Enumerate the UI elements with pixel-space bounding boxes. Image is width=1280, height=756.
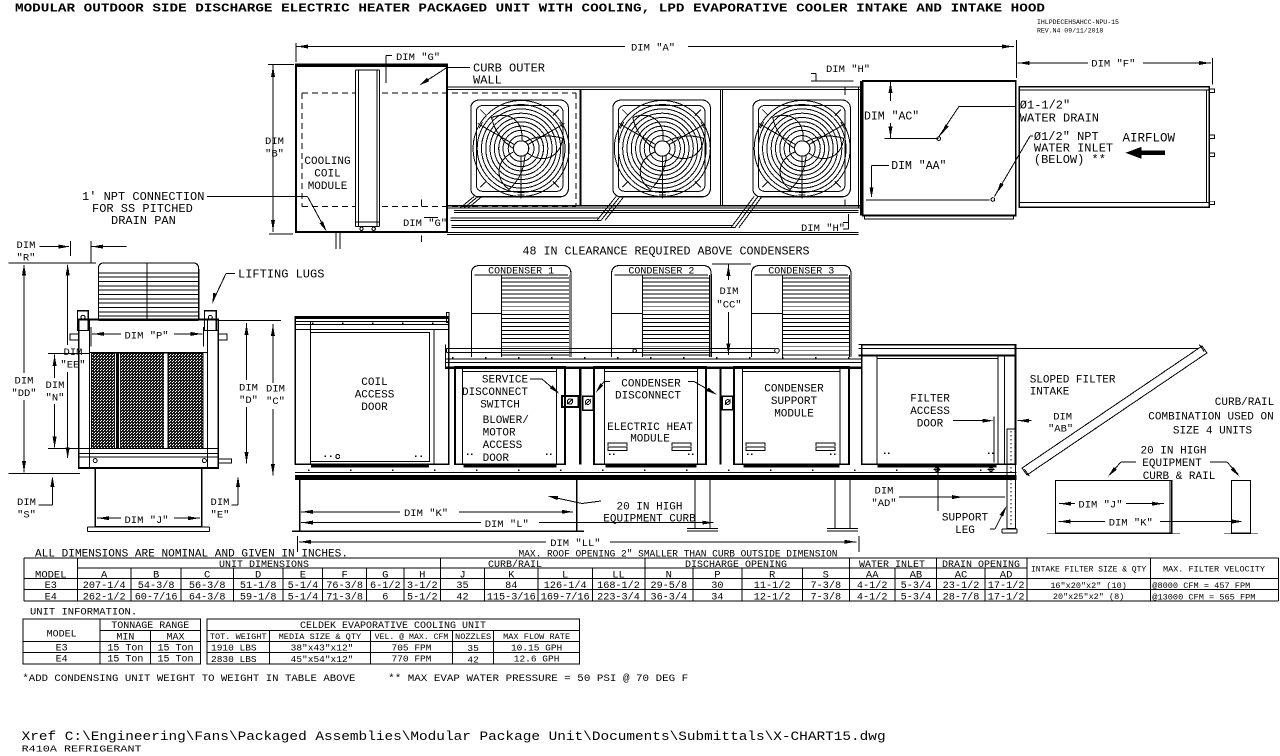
svg-text:"D": "D" bbox=[239, 395, 258, 407]
svg-text:36-3/4: 36-3/4 bbox=[650, 591, 687, 603]
svg-text:5-1/4: 5-1/4 bbox=[288, 591, 319, 603]
svg-text:DIM "G": DIM "G" bbox=[396, 52, 440, 64]
svg-text:SIZE 4 UNITS: SIZE 4 UNITS bbox=[1173, 426, 1253, 438]
svg-text:CONDENSER: CONDENSER bbox=[764, 384, 824, 396]
svg-text:REV.N4 09/11/2018: REV.N4 09/11/2018 bbox=[1037, 28, 1103, 35]
svg-text:CONDENSER 3: CONDENSER 3 bbox=[768, 267, 834, 278]
svg-text:10.15 GPH: 10.15 GPH bbox=[511, 642, 562, 653]
svg-text:INTAKE: INTAKE bbox=[1030, 387, 1070, 399]
svg-text:"CC": "CC" bbox=[716, 299, 741, 311]
svg-text:WALL: WALL bbox=[473, 74, 502, 88]
svg-text:(BELOW) **: (BELOW) ** bbox=[1034, 153, 1106, 167]
svg-text:SLOPED FILTER: SLOPED FILTER bbox=[1030, 375, 1116, 387]
svg-text:CONDENSER 1: CONDENSER 1 bbox=[488, 267, 554, 278]
svg-text:20 IN HIGH: 20 IN HIGH bbox=[616, 502, 682, 514]
svg-text:L: L bbox=[562, 569, 568, 581]
svg-text:64-3/8: 64-3/8 bbox=[189, 591, 226, 603]
svg-text:ACCESS: ACCESS bbox=[355, 390, 395, 402]
svg-text:** MAX EVAP WATER PRESSURE = 5: ** MAX EVAP WATER PRESSURE = 50 PSI @ 70… bbox=[388, 673, 688, 685]
svg-text:DOOR: DOOR bbox=[361, 402, 388, 414]
svg-text:48 IN CLEARANCE REQUIRED ABOVE: 48 IN CLEARANCE REQUIRED ABOVE CONDENSER… bbox=[523, 246, 810, 259]
svg-text:DIM: DIM bbox=[266, 384, 285, 396]
svg-text:20"x25"x2" (8): 20"x25"x2" (8) bbox=[1053, 592, 1124, 602]
svg-text:@8000 CFM = 457 FPM: @8000 CFM = 457 FPM bbox=[1152, 581, 1250, 591]
svg-text:6: 6 bbox=[382, 592, 388, 603]
svg-text:B: B bbox=[153, 569, 159, 581]
svg-text:45"x54"x12": 45"x54"x12" bbox=[291, 654, 354, 665]
svg-text:11-1/2: 11-1/2 bbox=[754, 580, 791, 592]
svg-text:DIM "AC": DIM "AC" bbox=[864, 111, 919, 124]
svg-text:H: H bbox=[419, 569, 425, 581]
svg-text:"DD": "DD" bbox=[11, 388, 36, 400]
svg-text:84: 84 bbox=[505, 581, 517, 592]
svg-text:35: 35 bbox=[456, 581, 468, 592]
svg-text:DISCONNECT: DISCONNECT bbox=[462, 387, 528, 399]
svg-text:34: 34 bbox=[711, 592, 723, 603]
svg-text:E3: E3 bbox=[45, 581, 57, 592]
svg-text:DISCONNECT: DISCONNECT bbox=[615, 391, 681, 403]
svg-text:NOZZLES: NOZZLES bbox=[455, 632, 491, 642]
svg-text:30: 30 bbox=[711, 581, 723, 592]
svg-text:IHLPDECEHSAHCC-NPU-15: IHLPDECEHSAHCC-NPU-15 bbox=[1037, 19, 1119, 26]
svg-text:"EE": "EE" bbox=[60, 360, 85, 372]
svg-text:126-1/4: 126-1/4 bbox=[544, 580, 587, 592]
svg-text:ACCESS: ACCESS bbox=[483, 440, 523, 452]
svg-text:7-3/8: 7-3/8 bbox=[811, 580, 842, 592]
svg-text:MODULE: MODULE bbox=[308, 181, 348, 193]
svg-text:DOOR: DOOR bbox=[917, 419, 944, 431]
svg-text:CELDEK EVAPORATIVE COOLING UNI: CELDEK EVAPORATIVE COOLING UNIT bbox=[300, 621, 486, 632]
svg-text:G: G bbox=[382, 569, 388, 581]
svg-text:DIM "F": DIM "F" bbox=[1091, 59, 1135, 71]
svg-text:168-1/2: 168-1/2 bbox=[597, 580, 640, 592]
svg-text:20 IN HIGH: 20 IN HIGH bbox=[1140, 446, 1206, 458]
svg-text:"E": "E" bbox=[211, 510, 230, 522]
svg-text:AB: AB bbox=[910, 569, 923, 581]
svg-text:LL: LL bbox=[612, 569, 625, 581]
svg-text:DIM: DIM bbox=[15, 376, 34, 388]
svg-text:AIRFLOW: AIRFLOW bbox=[1123, 132, 1176, 146]
svg-text:E4: E4 bbox=[45, 592, 57, 603]
svg-text:DIM: DIM bbox=[46, 380, 65, 392]
svg-text:35: 35 bbox=[467, 643, 479, 654]
svg-text:169-7/16: 169-7/16 bbox=[541, 591, 590, 603]
svg-text:DIM: DIM bbox=[1053, 412, 1072, 424]
svg-text:"N": "N" bbox=[46, 393, 65, 405]
svg-text:R410A REFRIGERANT: R410A REFRIGERANT bbox=[22, 744, 143, 755]
svg-text:CURB/RAIL: CURB/RAIL bbox=[488, 559, 542, 571]
svg-text:AD: AD bbox=[1000, 569, 1013, 581]
svg-text:VEL. @ MAX. CFM: VEL. @ MAX. CFM bbox=[375, 632, 449, 642]
svg-text:DIM: DIM bbox=[64, 347, 83, 359]
svg-text:D: D bbox=[255, 569, 261, 581]
svg-text:60-7/16: 60-7/16 bbox=[135, 591, 178, 603]
svg-text:EQUIPMENT: EQUIPMENT bbox=[1142, 458, 1202, 470]
svg-text:@13000 CFM = 565 FPM: @13000 CFM = 565 FPM bbox=[1152, 592, 1255, 602]
svg-text:LIFTING LUGS: LIFTING LUGS bbox=[238, 268, 324, 282]
svg-text:"AD": "AD" bbox=[871, 498, 896, 510]
svg-text:15 Ton: 15 Ton bbox=[107, 643, 143, 654]
svg-text:"B": "B" bbox=[265, 148, 284, 160]
svg-text:LEG: LEG bbox=[955, 525, 975, 537]
svg-text:7-3/8: 7-3/8 bbox=[811, 591, 842, 603]
svg-text:COOLING: COOLING bbox=[304, 156, 350, 168]
svg-text:15 Ton: 15 Ton bbox=[157, 643, 193, 654]
svg-text:DIM "H": DIM "H" bbox=[826, 64, 870, 76]
svg-text:12.6 GPH: 12.6 GPH bbox=[514, 654, 560, 665]
svg-text:76-3/8: 76-3/8 bbox=[326, 580, 363, 592]
svg-text:DRAIN PAN: DRAIN PAN bbox=[111, 214, 176, 228]
svg-text:6-1/2: 6-1/2 bbox=[370, 580, 401, 592]
svg-text:FILTER: FILTER bbox=[910, 394, 950, 406]
svg-text:DIM "P": DIM "P" bbox=[125, 331, 169, 343]
svg-text:UNIT INFORMATION.: UNIT INFORMATION. bbox=[30, 607, 137, 619]
svg-text:P: P bbox=[714, 569, 720, 581]
svg-text:23-1/2: 23-1/2 bbox=[943, 580, 980, 592]
svg-text:28-7/8: 28-7/8 bbox=[943, 591, 980, 603]
svg-text:MAX: MAX bbox=[166, 633, 184, 644]
svg-text:42: 42 bbox=[456, 592, 468, 603]
svg-text:DIM "H": DIM "H" bbox=[801, 223, 845, 235]
svg-text:MAX. FILTER VELOCITY: MAX. FILTER VELOCITY bbox=[1163, 565, 1265, 575]
svg-text:WATER DRAIN: WATER DRAIN bbox=[1020, 112, 1099, 126]
svg-text:262-1/2: 262-1/2 bbox=[83, 591, 126, 603]
svg-text:E3: E3 bbox=[56, 643, 68, 654]
svg-text:38"x43"x12": 38"x43"x12" bbox=[291, 643, 354, 654]
svg-text:DIM: DIM bbox=[875, 486, 894, 498]
svg-text:DIM "AA": DIM "AA" bbox=[891, 160, 946, 173]
svg-text:2830 LBS: 2830 LBS bbox=[211, 654, 257, 665]
svg-text:Ø1-1/2": Ø1-1/2" bbox=[1020, 99, 1070, 113]
svg-text:E4: E4 bbox=[56, 655, 68, 666]
svg-text:BLOWER/: BLOWER/ bbox=[483, 415, 529, 427]
svg-text:16"x20"x2" (10): 16"x20"x2" (10) bbox=[1050, 581, 1127, 591]
svg-text:INTAKE FILTER SIZE & QTY: INTAKE FILTER SIZE & QTY bbox=[1031, 566, 1146, 575]
svg-text:COMBINATION USED ON: COMBINATION USED ON bbox=[1148, 412, 1273, 424]
svg-text:ALL DIMENSIONS ARE NOMINAL AND: ALL DIMENSIONS ARE NOMINAL AND GIVEN IN … bbox=[35, 549, 348, 561]
svg-text:SERVICE: SERVICE bbox=[482, 375, 529, 387]
svg-text:TONNAGE RANGE: TONNAGE RANGE bbox=[111, 621, 189, 632]
svg-text:DIM "J": DIM "J" bbox=[1078, 500, 1122, 512]
svg-text:N: N bbox=[666, 569, 672, 581]
svg-text:"S": "S" bbox=[17, 510, 36, 522]
svg-text:29-5/8: 29-5/8 bbox=[650, 580, 687, 592]
svg-text:AA: AA bbox=[866, 569, 879, 581]
svg-text:DIM: DIM bbox=[720, 286, 739, 298]
svg-text:R: R bbox=[769, 569, 776, 581]
svg-text:"C": "C" bbox=[266, 396, 285, 408]
svg-text:DIM "K": DIM "K" bbox=[404, 508, 448, 520]
svg-text:MODEL: MODEL bbox=[35, 569, 67, 581]
svg-text:"AB": "AB" bbox=[1048, 424, 1073, 436]
svg-text:MAX FLOW RATE: MAX FLOW RATE bbox=[503, 632, 570, 642]
svg-text:CONDENSER: CONDENSER bbox=[621, 379, 681, 391]
svg-text:F: F bbox=[341, 569, 347, 581]
svg-text:DIM "G": DIM "G" bbox=[403, 218, 447, 230]
svg-text:COIL: COIL bbox=[314, 169, 340, 181]
svg-text:SUPPORT: SUPPORT bbox=[771, 396, 818, 408]
svg-text:Xref C:\Engineering\Fans\Packa: Xref C:\Engineering\Fans\Packaged Assemb… bbox=[22, 729, 886, 744]
svg-text:S: S bbox=[823, 569, 829, 581]
svg-text:AC: AC bbox=[955, 569, 968, 581]
svg-text:MODULE: MODULE bbox=[774, 409, 814, 421]
svg-text:71-3/8: 71-3/8 bbox=[326, 591, 363, 603]
svg-text:UNIT DIMENSIONS: UNIT DIMENSIONS bbox=[219, 560, 309, 571]
svg-text:115-3/16: 115-3/16 bbox=[487, 591, 536, 603]
svg-text:54-3/8: 54-3/8 bbox=[138, 580, 175, 592]
svg-text:EQUIPMENT CURB: EQUIPMENT CURB bbox=[603, 514, 696, 526]
svg-text:K: K bbox=[508, 569, 515, 581]
svg-text:15 Ton: 15 Ton bbox=[107, 655, 143, 666]
svg-text:207-1/4: 207-1/4 bbox=[83, 580, 126, 592]
svg-text:DIM: DIM bbox=[17, 497, 36, 509]
svg-text:DIM: DIM bbox=[265, 136, 284, 148]
svg-text:DIM: DIM bbox=[211, 497, 230, 509]
svg-text:DIM "J": DIM "J" bbox=[125, 515, 169, 527]
svg-text:MODULE: MODULE bbox=[630, 434, 670, 446]
svg-text:J: J bbox=[459, 569, 465, 581]
svg-text:MODEL: MODEL bbox=[47, 630, 77, 641]
svg-text:ELECTRIC HEAT: ELECTRIC HEAT bbox=[607, 422, 693, 434]
svg-text:42: 42 bbox=[467, 654, 479, 665]
svg-text:DIM "L": DIM "L" bbox=[485, 519, 529, 531]
svg-text:SUPPORT: SUPPORT bbox=[942, 513, 989, 525]
svg-text:17-1/2: 17-1/2 bbox=[988, 580, 1025, 592]
svg-text:DIM: DIM bbox=[239, 383, 258, 395]
svg-text:*ADD CONDENSING UNIT WEIGHT TO: *ADD CONDENSING UNIT WEIGHT TO WEIGHT IN… bbox=[22, 673, 355, 685]
svg-text:5-3/4: 5-3/4 bbox=[901, 591, 932, 603]
svg-text:DIM "A": DIM "A" bbox=[631, 43, 675, 55]
svg-text:DOOR: DOOR bbox=[483, 453, 510, 465]
svg-text:CURB/RAIL: CURB/RAIL bbox=[1215, 397, 1274, 409]
svg-text:A: A bbox=[101, 569, 108, 581]
svg-text:E: E bbox=[300, 569, 306, 581]
svg-text:4-1/2: 4-1/2 bbox=[857, 580, 888, 592]
svg-text:ACCESS: ACCESS bbox=[910, 406, 950, 418]
svg-text:COIL: COIL bbox=[361, 377, 387, 389]
svg-text:56-3/8: 56-3/8 bbox=[189, 580, 226, 592]
svg-text:MOTOR: MOTOR bbox=[483, 428, 516, 440]
svg-text:DIM "K": DIM "K" bbox=[1109, 518, 1153, 530]
svg-text:1910 LBS: 1910 LBS bbox=[211, 643, 257, 654]
svg-text:59-1/8: 59-1/8 bbox=[240, 591, 277, 603]
svg-text:223-3/4: 223-3/4 bbox=[597, 591, 640, 603]
svg-text:MIN: MIN bbox=[116, 633, 134, 644]
svg-text:4-1/2: 4-1/2 bbox=[857, 591, 888, 603]
svg-text:51-1/8: 51-1/8 bbox=[240, 580, 277, 592]
svg-text:12-1/2: 12-1/2 bbox=[754, 591, 791, 603]
svg-text:SWITCH: SWITCH bbox=[480, 400, 520, 412]
svg-text:705 FPM: 705 FPM bbox=[392, 642, 432, 653]
svg-text:TOT. WEIGHT: TOT. WEIGHT bbox=[210, 632, 267, 642]
svg-text:15 Ton: 15 Ton bbox=[157, 655, 193, 666]
svg-text:MODULAR OUTDOOR SIDE DISCHARGE: MODULAR OUTDOOR SIDE DISCHARGE ELECTRIC … bbox=[15, 2, 1045, 16]
svg-text:770 FPM: 770 FPM bbox=[392, 654, 432, 665]
svg-text:CONDENSER 2: CONDENSER 2 bbox=[628, 267, 694, 278]
svg-text:5-1/4: 5-1/4 bbox=[288, 580, 319, 592]
svg-text:DIM: DIM bbox=[17, 240, 36, 252]
svg-text:3-1/2: 3-1/2 bbox=[407, 580, 438, 592]
svg-text:5-1/2: 5-1/2 bbox=[407, 591, 438, 603]
svg-text:MEDIA SIZE & QTY: MEDIA SIZE & QTY bbox=[279, 632, 362, 642]
svg-text:17-1/2: 17-1/2 bbox=[988, 591, 1025, 603]
svg-text:C: C bbox=[204, 569, 210, 581]
svg-text:5-3/4: 5-3/4 bbox=[901, 580, 932, 592]
